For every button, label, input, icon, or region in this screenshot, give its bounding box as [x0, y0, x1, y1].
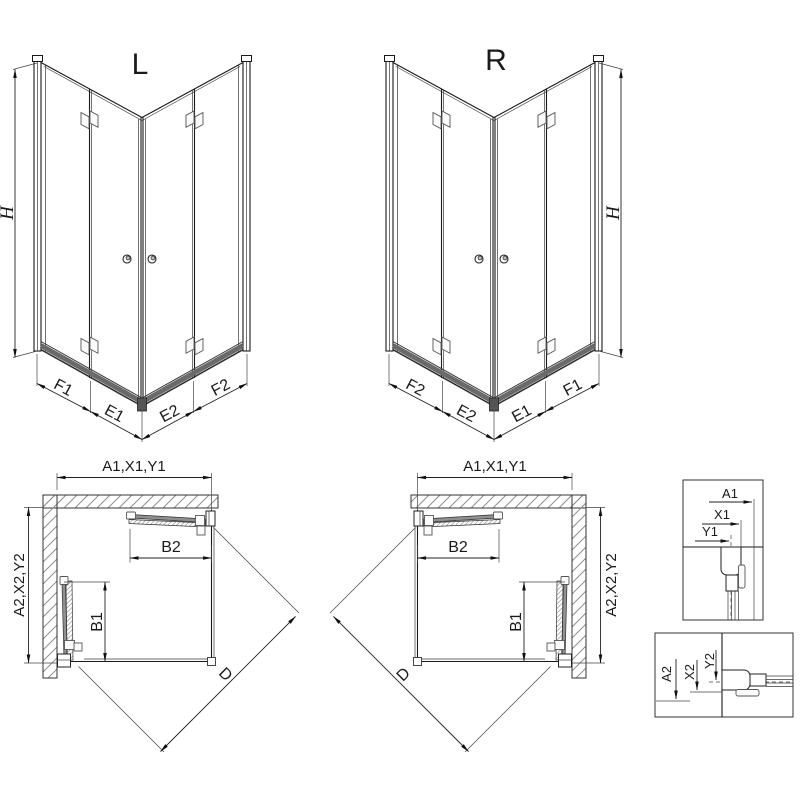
detail-box-side-profile: A2 X2 Y2	[655, 633, 793, 717]
hinge-bracket	[547, 643, 555, 651]
wall-left	[43, 495, 57, 678]
drawing-svg: L H F1 E1 E2 F2 R H F2 E2 E1 F1	[0, 0, 800, 800]
wall-profile-top-r	[414, 511, 423, 526]
detail-x1-label: X1	[714, 507, 730, 522]
plan-view-r: A1,X1,Y1 A2,X2,Y2 B2	[330, 458, 620, 752]
diagonal-label-l: D	[215, 665, 235, 685]
height-label-r: H	[603, 205, 624, 221]
door-package-top-l	[127, 511, 216, 535]
segment-label-l-f2: F2	[209, 376, 234, 400]
corner-bracket-l	[208, 658, 216, 666]
b1-label-l: B1	[89, 612, 106, 632]
corner-bracket-r	[414, 658, 422, 666]
detail-a2-label: A2	[659, 666, 674, 682]
hinge-bracket	[65, 641, 75, 650]
hinge-bracket	[74, 643, 82, 651]
hinge-bracket	[197, 526, 205, 535]
height-label-l: H	[0, 205, 18, 221]
profile-clamp	[736, 690, 759, 697]
iso-view-r: R H F2 E2 E1 F1	[385, 44, 625, 442]
segment-label-l-e1: E1	[101, 402, 126, 426]
diagonal-label-r: D	[394, 665, 414, 685]
hinge-bracket	[555, 641, 565, 650]
hinge-bracket	[196, 516, 205, 526]
variant-label-r: R	[485, 44, 507, 77]
depth-label-r: A2,X2,Y2	[603, 553, 620, 616]
segment-label-r-e1: E1	[509, 402, 534, 426]
shower-enclosure-technical-drawing: L H F1 E1 E2 F2 R H F2 E2 E1 F1	[0, 0, 800, 800]
variant-label-l: L	[132, 48, 149, 81]
door-package-side-l	[58, 577, 83, 668]
glass-edge-lines	[728, 591, 739, 620]
hinge-bracket	[424, 526, 432, 535]
b2-label-r: B2	[448, 539, 468, 556]
detail-x2-label: X2	[682, 664, 697, 680]
hinge-bracket	[60, 577, 68, 585]
dimension-diagonal-r: D	[330, 528, 551, 753]
segment-label-r-e2: E2	[453, 402, 478, 426]
segment-label-l-e2: E2	[157, 402, 182, 426]
door-package-side-r	[547, 577, 572, 668]
glass-closed-edges-r	[414, 510, 565, 666]
wall-profile-side-r	[559, 654, 572, 667]
height-dimension-r: H	[599, 63, 624, 358]
profile-clamp	[739, 565, 746, 588]
detail-y2-label: Y2	[702, 653, 717, 669]
wall-right	[572, 495, 586, 678]
segment-label-l-f1: F1	[51, 376, 76, 400]
wall-profile-top-l	[206, 511, 215, 526]
height-dimension-l: H	[0, 63, 37, 358]
wall-top	[411, 495, 586, 508]
door-package-top-r	[414, 511, 503, 535]
segment-label-r-f2: F2	[403, 376, 428, 400]
wall-profile-side-l	[58, 654, 71, 667]
detail-a1-label: A1	[722, 486, 738, 501]
glass-closed-edges-l	[65, 510, 216, 666]
width-label-r: A1,X1,Y1	[463, 458, 526, 475]
detail-y1-label: Y1	[702, 524, 718, 539]
wall-profile-section	[721, 547, 741, 575]
width-label-l: A1,X1,Y1	[102, 458, 165, 475]
hinge-bracket	[127, 512, 136, 519]
hinge-bracket	[561, 577, 569, 585]
segment-label-r-f1: F1	[561, 376, 586, 400]
depth-label-l: A2,X2,Y2	[11, 553, 28, 616]
hinge-bracket	[494, 512, 503, 519]
b1-label-r: B1	[508, 612, 525, 632]
detail-box-top-profile: A1 X1 Y1	[683, 480, 763, 620]
iso-view-l: L H F1 E1 E2 F2	[0, 48, 252, 442]
dimension-diagonal-l: D	[79, 528, 300, 753]
glass-edge-lines	[766, 676, 793, 687]
wall-top	[43, 495, 218, 508]
hinge-bracket	[425, 516, 434, 526]
b2-label-l: B2	[161, 539, 181, 556]
plan-view-l: A1,X1,Y1 A2,X2,Y2	[11, 458, 299, 752]
wall-profile-section	[722, 670, 750, 690]
